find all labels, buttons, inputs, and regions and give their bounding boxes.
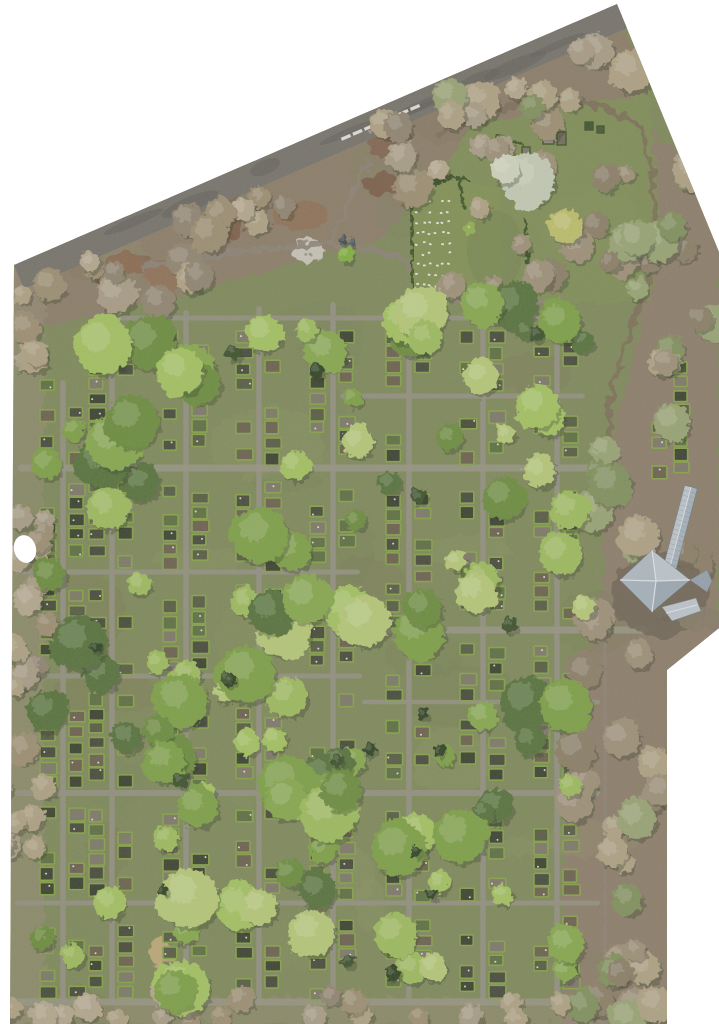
canopy-highlight xyxy=(0,834,6,845)
orthophoto-canvas xyxy=(0,0,719,1024)
canopy-highlight xyxy=(698,86,717,105)
tree-canopy xyxy=(696,85,719,108)
tree-canopy xyxy=(0,779,13,796)
canopy-lobe xyxy=(687,145,714,172)
canopy-highlight xyxy=(0,833,9,849)
tree-shadow xyxy=(696,86,719,123)
orthophoto xyxy=(0,0,719,1024)
ground-mottle xyxy=(0,141,84,191)
photo-grain xyxy=(0,0,719,1024)
canopy-highlight xyxy=(699,87,711,99)
canopy-highlight xyxy=(682,142,701,161)
canopy-lobe xyxy=(706,81,719,104)
canopy-main xyxy=(694,83,719,120)
orthophoto-page xyxy=(0,0,719,1024)
canopy-main xyxy=(0,779,13,796)
tree-canopy xyxy=(694,81,719,120)
canopy-lobe xyxy=(0,835,4,849)
ground-mottle xyxy=(51,142,147,195)
canopy-main xyxy=(696,85,719,108)
canopy-lobe xyxy=(0,780,6,790)
grain-overlay xyxy=(0,0,719,1024)
tree-shadow xyxy=(699,88,719,111)
canopy-lobe xyxy=(707,89,719,103)
canopy-highlight xyxy=(0,781,6,789)
canopy-lobe xyxy=(0,837,6,856)
